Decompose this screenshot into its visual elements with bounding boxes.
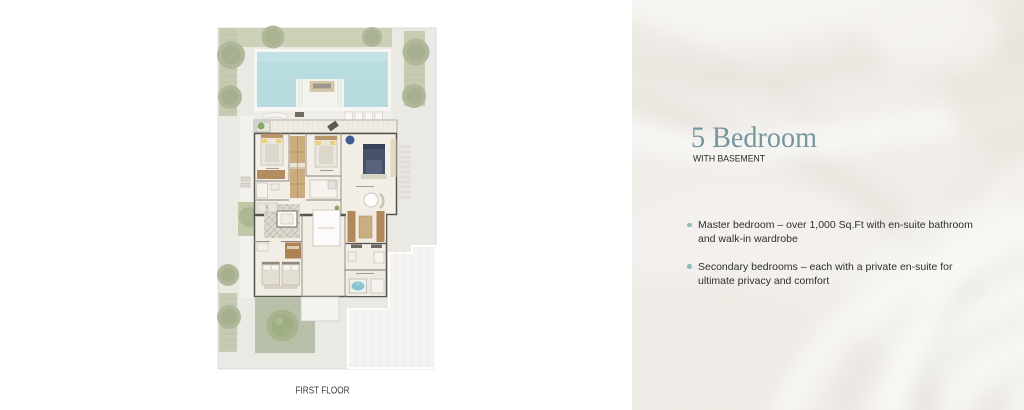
svg-text:5 Bedroom: 5 Bedroom xyxy=(691,121,817,154)
svg-text:WITH BASEMENT: WITH BASEMENT xyxy=(693,153,765,163)
svg-text:FIRST FLOOR: FIRST FLOOR xyxy=(296,386,350,397)
